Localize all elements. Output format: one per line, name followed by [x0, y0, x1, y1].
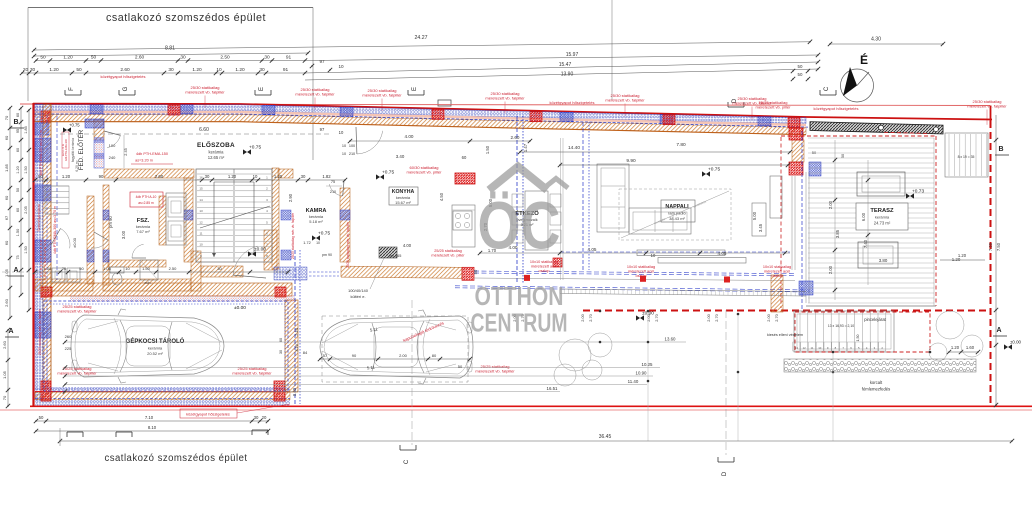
svg-text:24.27: 24.27 — [415, 35, 428, 41]
svg-text:méretezett acél: méretezett acél — [531, 265, 557, 269]
svg-text:10: 10 — [253, 174, 258, 179]
svg-text:30: 30 — [217, 266, 222, 271]
svg-text:1.82: 1.82 — [322, 174, 331, 179]
svg-text:méretezett vb. falpillér: méretezett vb. falpillér — [57, 371, 97, 376]
svg-text:2.00: 2.00 — [828, 200, 833, 209]
svg-text:91: 91 — [283, 67, 289, 73]
svg-text:1.50: 1.50 — [16, 229, 20, 236]
svg-text:210: 210 — [349, 152, 355, 156]
svg-text:méretezett vb. pillér: méretezett vb. pillér — [431, 254, 465, 258]
svg-text:50: 50 — [798, 72, 803, 77]
svg-text:7.80: 7.80 — [676, 142, 686, 148]
svg-text:2.00: 2.00 — [706, 313, 711, 321]
svg-text:100: 100 — [349, 144, 355, 148]
svg-text:3.40: 3.40 — [396, 154, 405, 159]
svg-text:2.00: 2.00 — [580, 313, 585, 321]
svg-text:50: 50 — [16, 188, 20, 192]
svg-text:közétgyapot hőszigetelés: közétgyapot hőszigetelés — [814, 106, 859, 111]
svg-text:méretezett vb. falpillér: méretezett vb. falpillér — [362, 93, 402, 98]
svg-text:6.00: 6.00 — [861, 212, 866, 221]
svg-text:4db PTH-EMA-150 as=3.20 m: 4db PTH-EMA-150 as=3.20 m — [39, 130, 43, 176]
svg-text:50: 50 — [798, 64, 803, 69]
svg-text:50: 50 — [473, 269, 478, 274]
svg-text:260: 260 — [65, 334, 72, 339]
svg-text:97: 97 — [319, 59, 325, 64]
svg-text:6.60: 6.60 — [199, 127, 209, 133]
svg-text:oszlop: oszlop — [636, 274, 647, 278]
svg-text:GÉPKOCSI TÁROLÓ: GÉPKOCSI TÁROLÓ — [126, 337, 185, 345]
svg-text:20: 20 — [262, 415, 267, 420]
svg-text:2.60: 2.60 — [4, 298, 9, 307]
svg-text:20: 20 — [62, 266, 67, 271]
svg-text:3.19: 3.19 — [294, 343, 299, 352]
svg-text:1.60: 1.60 — [966, 345, 975, 350]
svg-text:4.00: 4.00 — [405, 134, 414, 139]
svg-text:1.20: 1.20 — [192, 67, 202, 73]
svg-text:91: 91 — [286, 55, 292, 61]
svg-text:3.00: 3.00 — [121, 230, 126, 239]
svg-text:csatlakozó szomszédos épület: csatlakozó szomszédos épület — [106, 12, 266, 24]
svg-text:20.52 m²: 20.52 m² — [147, 351, 163, 356]
svg-text:as=3.20 m: as=3.20 m — [135, 159, 153, 163]
svg-text:közétgyapot hőszigetelés: közétgyapot hőszigetelés — [101, 74, 146, 79]
svg-text:8 x 19 = 35: 8 x 19 = 35 — [958, 155, 975, 159]
svg-text:25/25 statikailag mér. vb. fal: 25/25 statikailag mér. vb. falpillér — [346, 221, 350, 268]
svg-text:1.85: 1.85 — [24, 126, 28, 133]
svg-text:kiesés elleni védelem: kiesés elleni védelem — [767, 333, 803, 337]
svg-text:korcalt: korcalt — [870, 380, 883, 385]
svg-text:15: 15 — [199, 187, 203, 191]
svg-text:90: 90 — [99, 174, 104, 179]
svg-text:3.85: 3.85 — [835, 229, 840, 238]
svg-text:±0.00: ±0.00 — [234, 305, 246, 311]
svg-text:csatlakozó szomszédos épület: csatlakozó szomszédos épület — [105, 453, 248, 464]
svg-text:+0.75: +0.75 — [249, 144, 261, 150]
svg-text:13: 13 — [199, 209, 203, 213]
svg-text:50: 50 — [79, 266, 84, 271]
svg-text:méretezett acél: méretezett acél — [628, 270, 654, 274]
svg-text:97: 97 — [320, 127, 325, 132]
svg-text:1.72: 1.72 — [303, 241, 310, 245]
svg-text:60: 60 — [462, 155, 467, 160]
svg-text:30: 30 — [30, 67, 36, 73]
svg-text:1.20: 1.20 — [228, 174, 237, 179]
svg-text:8.81: 8.81 — [165, 46, 175, 52]
svg-text:2.60: 2.60 — [511, 135, 520, 140]
svg-text:5.00: 5.00 — [752, 211, 757, 220]
svg-text:+0.75: +0.75 — [318, 230, 330, 236]
svg-text:méretezett vb. falpillér: méretezett vb. falpillér — [295, 92, 335, 97]
svg-text:95: 95 — [16, 129, 20, 133]
svg-text:60: 60 — [279, 338, 283, 342]
svg-text:méretezett vb. falpillér: méretezett vb. falpillér — [57, 309, 97, 314]
svg-text:30: 30 — [259, 67, 265, 73]
svg-text:ELŐSZOBA: ELŐSZOBA — [197, 140, 235, 149]
svg-text:2.10: 2.10 — [294, 327, 299, 336]
svg-text:méretezett acél: méretezett acél — [764, 270, 790, 274]
svg-text:2.90: 2.90 — [288, 193, 293, 202]
svg-text:pm 90: pm 90 — [108, 216, 113, 228]
svg-text:lam.padló: lam.padló — [668, 211, 686, 216]
svg-text:7.20: 7.20 — [988, 242, 993, 251]
svg-text:±0.00: ±0.00 — [1010, 339, 1022, 344]
svg-text:1.08: 1.08 — [44, 266, 53, 271]
svg-text:1.50: 1.50 — [142, 266, 151, 271]
svg-text:10.25: 10.25 — [642, 362, 654, 367]
svg-text:10: 10 — [316, 241, 320, 245]
svg-text:50: 50 — [841, 154, 845, 158]
svg-text:CENTRUM: CENTRUM — [471, 308, 568, 338]
svg-text:12.65 m²: 12.65 m² — [208, 155, 225, 160]
svg-text:2.60: 2.60 — [135, 55, 145, 61]
svg-text:E: E — [412, 87, 418, 91]
svg-text:+0.75: +0.75 — [69, 122, 80, 127]
svg-text:240: 240 — [109, 155, 116, 160]
svg-text:30: 30 — [168, 67, 174, 73]
svg-text:10: 10 — [818, 346, 822, 350]
svg-text:10: 10 — [199, 243, 203, 247]
svg-text:75: 75 — [16, 255, 20, 259]
svg-text:30: 30 — [264, 55, 270, 61]
svg-text:10: 10 — [216, 67, 222, 73]
svg-text:100/40/140: 100/40/140 — [348, 288, 369, 293]
svg-text:kerámia: kerámia — [209, 150, 225, 155]
svg-text:4db PTH-EMA-300 as=3.70 m: 4db PTH-EMA-300 as=3.70 m — [53, 206, 57, 254]
svg-text:30: 30 — [180, 55, 186, 61]
svg-text:225: 225 — [65, 346, 72, 351]
svg-text:1.50: 1.50 — [24, 246, 28, 253]
svg-text:60: 60 — [4, 135, 9, 140]
svg-text:±0.00: ±0.00 — [72, 237, 77, 248]
svg-text:as=2.85 m: as=2.85 m — [138, 201, 154, 205]
svg-text:12: 12 — [199, 220, 203, 224]
svg-text:14.40: 14.40 — [568, 145, 580, 151]
svg-text:15.67 m²: 15.67 m² — [395, 200, 411, 205]
svg-text:60: 60 — [16, 113, 20, 117]
svg-text:méretezett vb. falpillér: méretezett vb. falpillér — [232, 371, 272, 376]
svg-text:méretezett vb. falpillér: méretezett vb. falpillér — [475, 369, 515, 374]
svg-text:10: 10 — [338, 64, 344, 69]
svg-text:30: 30 — [254, 415, 259, 420]
svg-text:+0.73: +0.73 — [912, 188, 924, 194]
svg-text:F: F — [69, 87, 75, 91]
svg-text:G: G — [123, 86, 129, 91]
svg-text:4.05: 4.05 — [718, 251, 727, 256]
svg-text:1,50: 1,50 — [856, 335, 860, 342]
svg-text:1.50: 1.50 — [24, 166, 28, 173]
svg-text:8.10: 8.10 — [148, 425, 157, 430]
svg-text:10: 10 — [342, 144, 346, 148]
svg-text:oszlop: oszlop — [539, 269, 550, 273]
svg-text:1.85: 1.85 — [4, 163, 9, 172]
svg-text:B: B — [13, 119, 18, 126]
svg-text:kültéri e.: kültéri e. — [350, 294, 365, 299]
svg-text:méretezett vb. falpillér: méretezett vb. falpillér — [967, 104, 1007, 109]
svg-text:10: 10 — [651, 253, 656, 258]
svg-text:2.60: 2.60 — [155, 174, 164, 179]
svg-text:Személybejárat: Személybejárat — [36, 203, 41, 231]
svg-text:11.40: 11.40 — [628, 379, 639, 384]
svg-text:60: 60 — [16, 208, 20, 212]
svg-text:70: 70 — [4, 115, 9, 120]
svg-text:38.43 m²: 38.43 m² — [669, 216, 685, 221]
svg-text:+0.75: +0.75 — [382, 169, 394, 175]
svg-text:210: 210 — [330, 190, 336, 194]
svg-text:méretezett vb. falpillér: méretezett vb. falpillér — [485, 96, 525, 101]
svg-text:4.00: 4.00 — [403, 243, 412, 248]
svg-text:1.20: 1.20 — [63, 55, 73, 61]
svg-text:6.29 m²: 6.29 m² — [75, 160, 79, 172]
svg-text:7.50: 7.50 — [996, 242, 1001, 251]
svg-text:±0.00: ±0.00 — [254, 246, 266, 252]
svg-text:3.45: 3.45 — [758, 223, 763, 232]
svg-text:57: 57 — [323, 353, 328, 358]
svg-text:36.45: 36.45 — [599, 434, 612, 440]
svg-text:50: 50 — [91, 55, 97, 61]
svg-text:60: 60 — [16, 148, 20, 152]
svg-text:FED. ELŐTÉR: FED. ELŐTÉR — [78, 129, 85, 170]
svg-text:2.70: 2.70 — [654, 313, 659, 321]
svg-text:TERASZ: TERASZ — [870, 208, 894, 214]
svg-text:24.73 m²: 24.73 m² — [874, 221, 891, 226]
svg-text:1.47: 1.47 — [523, 143, 528, 152]
svg-text:16.51: 16.51 — [547, 386, 559, 391]
svg-text:10x10 statikailag: 10x10 statikailag — [763, 265, 791, 269]
svg-text:5.18 m²: 5.18 m² — [309, 219, 323, 224]
svg-text:7.67 m²: 7.67 m² — [136, 229, 150, 234]
svg-text:fagyálló kerámia: fagyálló kerámia — [71, 138, 75, 162]
svg-text:20: 20 — [23, 67, 29, 73]
svg-text:67: 67 — [4, 215, 9, 220]
svg-text:A: A — [8, 328, 13, 335]
svg-text:2.70: 2.70 — [774, 313, 779, 321]
svg-text:10.90: 10.90 — [636, 371, 648, 376]
svg-text:A: A — [996, 327, 1001, 334]
svg-text:7.40: 7.40 — [863, 239, 868, 248]
svg-text:10x10 statikailag: 10x10 statikailag — [627, 265, 655, 269]
svg-text:1.20: 1.20 — [62, 174, 71, 179]
svg-text:ÖC: ÖC — [478, 189, 561, 264]
svg-text:méretezett vb. falpillér: méretezett vb. falpillér — [185, 90, 225, 95]
svg-text:2.60: 2.60 — [120, 67, 130, 73]
svg-text:3.80: 3.80 — [879, 258, 888, 263]
svg-text:4.50: 4.50 — [439, 192, 444, 201]
svg-text:25/25 statikailag mér. vb. fal: 25/25 statikailag mér. vb. falpillér — [38, 308, 42, 355]
svg-text:1.20: 1.20 — [274, 174, 283, 179]
svg-text:2.45: 2.45 — [124, 148, 128, 155]
svg-text:oszlop: oszlop — [772, 274, 783, 278]
svg-text:OTTHON: OTTHON — [475, 281, 564, 311]
svg-text:15.47: 15.47 — [559, 62, 572, 68]
svg-text:13.90: 13.90 — [561, 72, 574, 78]
svg-text:14: 14 — [199, 198, 203, 202]
svg-text:A: A — [13, 267, 18, 274]
svg-text:4.30: 4.30 — [871, 37, 881, 43]
svg-text:C: C — [404, 459, 410, 464]
svg-text:zuh.: zuh. — [144, 281, 151, 285]
svg-text:1.50: 1.50 — [485, 145, 490, 154]
svg-text:2.00: 2.00 — [399, 353, 408, 358]
svg-text:25/25 statikailag mér. vb. fal: 25/25 statikailag mér. vb. falpillér — [291, 212, 295, 259]
svg-text:fémlemezfedés: fémlemezfedés — [862, 387, 890, 392]
svg-text:közétgyapot hőszigetelés: közétgyapot hőszigetelés — [550, 100, 595, 105]
svg-text:11: 11 — [199, 232, 202, 236]
svg-text:1.20: 1.20 — [49, 67, 59, 73]
svg-text:kerámia: kerámia — [148, 346, 163, 351]
svg-text:NAPPALI: NAPPALI — [665, 204, 689, 210]
svg-text:70: 70 — [2, 395, 7, 400]
svg-text:2.70: 2.70 — [588, 313, 593, 321]
svg-text:50: 50 — [39, 415, 44, 420]
svg-text:60: 60 — [4, 240, 9, 245]
svg-text:9.90: 9.90 — [626, 158, 636, 164]
svg-text:7.10: 7.10 — [145, 415, 154, 420]
svg-text:50: 50 — [76, 67, 82, 73]
svg-text:10: 10 — [339, 130, 344, 135]
svg-text:30: 30 — [279, 350, 283, 354]
svg-text:11: 11 — [811, 346, 814, 350]
svg-text:méretezett vb. pillér: méretezett vb. pillér — [407, 170, 443, 175]
svg-text:4.05: 4.05 — [588, 247, 597, 252]
svg-text:D: D — [722, 471, 728, 476]
svg-text:50: 50 — [40, 55, 46, 61]
svg-text:kerámia: kerámia — [875, 215, 890, 220]
svg-text:2.00: 2.00 — [766, 313, 771, 321]
svg-text:1.20: 1.20 — [951, 345, 960, 350]
svg-text:as=3.70 m: as=3.70 m — [61, 144, 65, 156]
svg-text:10: 10 — [125, 266, 130, 271]
svg-text:2.70: 2.70 — [714, 313, 719, 321]
svg-text:C: C — [824, 86, 830, 91]
svg-text:2.50: 2.50 — [220, 55, 230, 61]
svg-text:15.97: 15.97 — [566, 52, 579, 58]
svg-text:pm 90: pm 90 — [322, 253, 332, 257]
svg-text:B: B — [998, 146, 1003, 153]
svg-text:4db PTH-EMA-150: 4db PTH-EMA-150 — [136, 152, 168, 156]
svg-text:25/25 statikailag: 25/25 statikailag — [434, 249, 461, 253]
svg-text:16: 16 — [199, 176, 203, 180]
svg-text:13.60: 13.60 — [665, 337, 677, 342]
svg-text:1.05: 1.05 — [2, 370, 7, 379]
svg-text:60: 60 — [4, 195, 9, 200]
svg-text:84: 84 — [303, 350, 308, 355]
svg-text:2.05: 2.05 — [24, 206, 28, 213]
svg-text:12: 12 — [803, 346, 807, 350]
svg-text:pincelejárat: pincelejárat — [864, 317, 886, 322]
svg-text:80: 80 — [432, 353, 437, 358]
svg-text:10: 10 — [342, 152, 346, 156]
svg-text:13 x 16,93 = 2,10: 13 x 16,93 = 2,10 — [828, 324, 854, 328]
svg-text:+0.75: +0.75 — [708, 166, 720, 172]
svg-text:50: 50 — [458, 364, 463, 369]
svg-text:1.20: 1.20 — [16, 166, 20, 173]
svg-text:90: 90 — [352, 353, 357, 358]
svg-text:E: E — [259, 87, 265, 91]
svg-text:méretezett vb. falpillér: méretezett vb. falpillér — [605, 98, 645, 103]
svg-text:É: É — [860, 52, 868, 67]
svg-text:közétgyapot hőszigetelés: közétgyapot hőszigetelés — [186, 412, 230, 417]
svg-text:1.20: 1.20 — [235, 67, 245, 73]
svg-text:75: 75 — [331, 180, 335, 184]
svg-text:1.20: 1.20 — [958, 253, 967, 258]
svg-text:1.06: 1.06 — [103, 266, 112, 271]
svg-text:2.60: 2.60 — [2, 340, 7, 349]
svg-text:4db PTH A-10: 4db PTH A-10 — [136, 195, 157, 199]
svg-text:2.50: 2.50 — [169, 266, 178, 271]
svg-text:30: 30 — [301, 174, 306, 179]
svg-text:30: 30 — [205, 174, 210, 179]
svg-text:2.00: 2.00 — [828, 265, 833, 274]
